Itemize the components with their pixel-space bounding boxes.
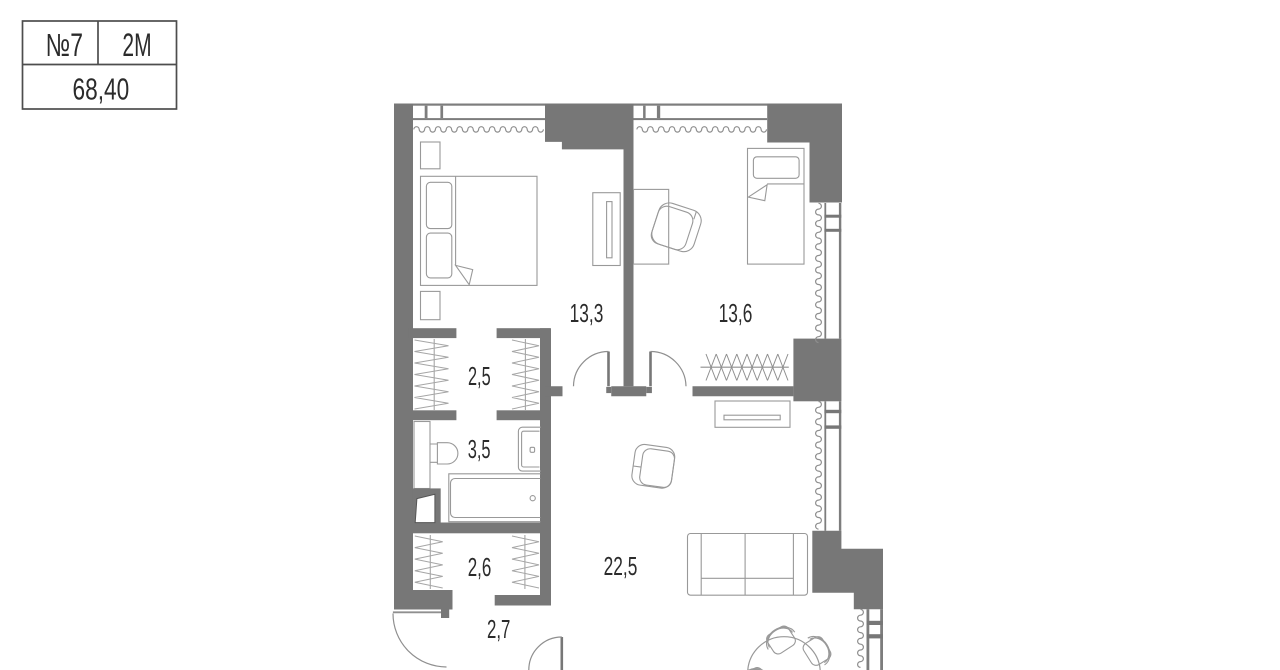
svg-text:13,3: 13,3 [570,298,604,327]
svg-text:3,5: 3,5 [468,434,491,464]
svg-text:2,7: 2,7 [487,614,510,644]
svg-text:13,6: 13,6 [719,298,753,327]
svg-text:68,40: 68,40 [73,72,130,106]
svg-text:2М: 2М [122,26,151,63]
svg-text:22,5: 22,5 [604,551,638,580]
svg-text:2,5: 2,5 [468,361,491,391]
svg-text:2,6: 2,6 [468,552,492,582]
svg-text:№7: №7 [46,27,83,63]
